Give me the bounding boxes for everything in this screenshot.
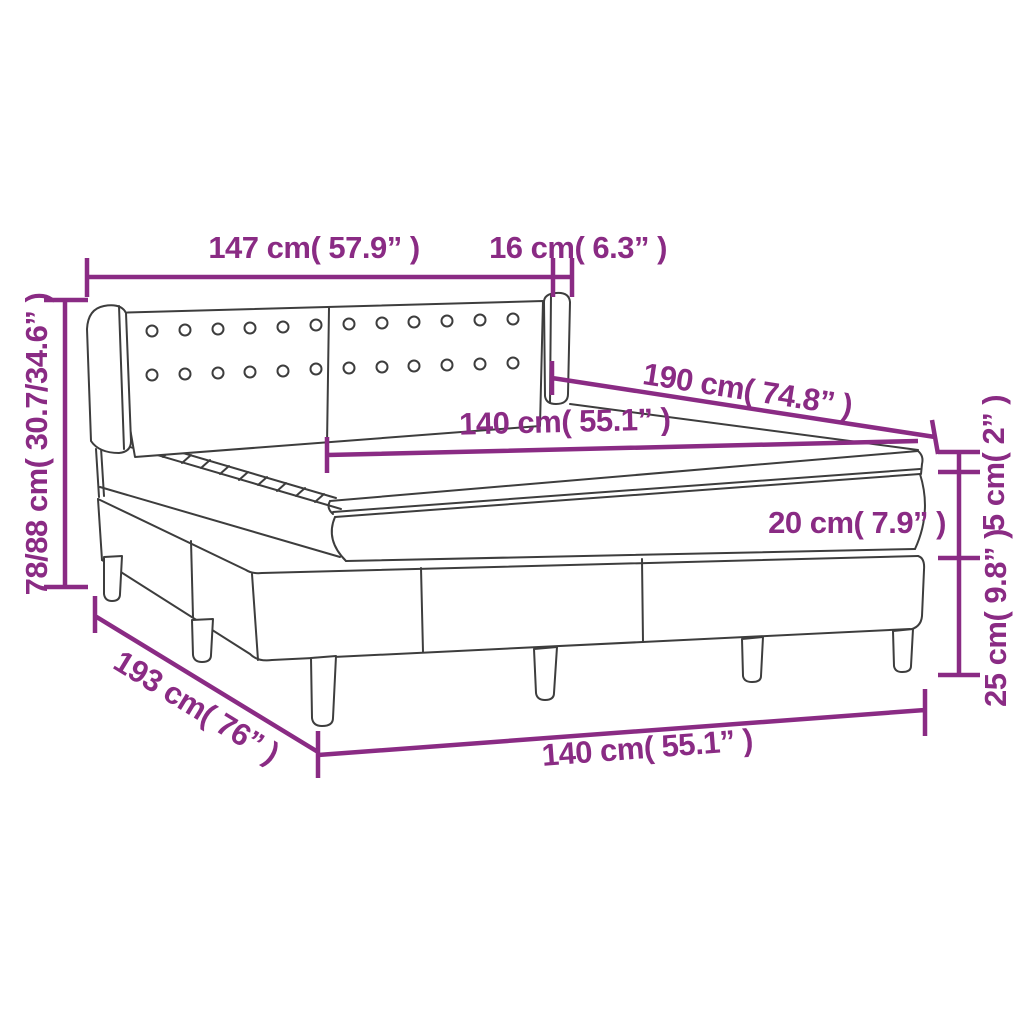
base-bottom-edge	[102, 560, 910, 660]
base-left-edge	[98, 499, 102, 560]
bed-legs	[104, 556, 913, 726]
dim-label-5: 5 cm( 2” )	[976, 395, 1011, 531]
leg-front-4	[893, 629, 913, 672]
dim-label-25: 25 cm( 9.8” )	[978, 529, 1013, 707]
topper-right-cap	[918, 451, 923, 474]
leg-back-left	[104, 556, 122, 601]
dim-line-140-top	[327, 437, 918, 473]
dimension-wing-depth: 16 cm( 6.3” )	[489, 230, 667, 297]
dim-label-193: 193 cm( 76” )	[108, 644, 285, 771]
diagram-canvas: 147 cm( 57.9” ) 16 cm( 6.3” ) 78/88 cm( …	[0, 0, 1024, 1024]
base-corner-edge	[252, 574, 258, 660]
dim-label-147: 147 cm( 57.9” )	[208, 230, 419, 265]
leg-front-2	[534, 647, 557, 700]
dim-label-140-bottom: 140 cm( 55.1” )	[541, 722, 754, 773]
dim-label-190: 190 cm( 74.8” )	[640, 356, 854, 423]
headboard-left-wing	[87, 305, 131, 453]
dim-label-height: 78/88 cm( 30.7/34.6” )	[19, 293, 54, 596]
leg-mid-left	[192, 619, 213, 662]
dim-label-16: 16 cm( 6.3” )	[489, 230, 667, 265]
back-corner-edge-2	[101, 448, 104, 496]
headboard-right-wing	[544, 293, 570, 404]
base-seam-right	[642, 559, 643, 642]
base-seam-left	[191, 541, 193, 617]
leg-front-3	[742, 637, 763, 682]
base-right-cap	[908, 556, 924, 630]
dim-label-20: 20 cm( 7.9” )	[768, 505, 946, 540]
dim-label-140-top: 140 cm( 55.1” )	[459, 401, 671, 441]
topper-left-cap	[329, 501, 333, 514]
base-seam-mid	[421, 568, 423, 652]
dimension-width-bottom: 140 cm( 55.1” )	[318, 689, 925, 773]
dim-line-layers	[938, 452, 980, 675]
back-corner-edge-1	[96, 449, 99, 497]
leg-front-1	[311, 656, 336, 726]
dimension-diagram: 147 cm( 57.9” ) 16 cm( 6.3” ) 78/88 cm( …	[0, 0, 1024, 1024]
dimension-total-height: 78/88 cm( 30.7/34.6” )	[19, 293, 88, 596]
